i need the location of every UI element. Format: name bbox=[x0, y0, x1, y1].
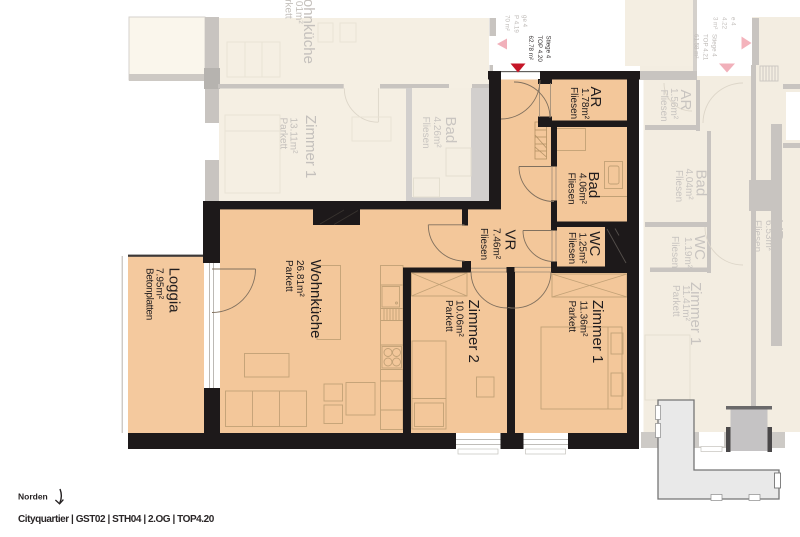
svg-text:6.53m²: 6.53m² bbox=[763, 220, 774, 252]
svg-text:1.25m²: 1.25m² bbox=[577, 233, 588, 265]
svg-text:Zimmer 1: Zimmer 1 bbox=[589, 300, 606, 363]
svg-text:Parkett: Parkett bbox=[566, 301, 577, 333]
svg-text:Cityquartier | GST02 | STH04 |: Cityquartier | GST02 | STH04 | 2.OG | TO… bbox=[18, 514, 215, 525]
svg-text:Fliesen: Fliesen bbox=[658, 90, 669, 122]
svg-text:4.22: 4.22 bbox=[720, 17, 727, 30]
svg-text:Fliesen: Fliesen bbox=[673, 170, 684, 202]
svg-text:Stiege 4: Stiege 4 bbox=[545, 36, 552, 59]
svg-text:3 m²: 3 m² bbox=[711, 17, 718, 29]
svg-text:Loggia: Loggia bbox=[166, 268, 183, 314]
svg-text:VR: VR bbox=[502, 230, 519, 251]
svg-text:ge 4: ge 4 bbox=[521, 15, 528, 28]
svg-text:Zimmer 2: Zimmer 2 bbox=[465, 300, 482, 363]
svg-text:Norden: Norden bbox=[18, 492, 48, 502]
svg-text:70 m²: 70 m² bbox=[504, 15, 511, 31]
svg-text:e 4: e 4 bbox=[729, 17, 736, 26]
svg-text:Fliesen: Fliesen bbox=[565, 173, 576, 205]
svg-text:Stiege 4: Stiege 4 bbox=[710, 34, 717, 57]
svg-text:Wohnküche: Wohnküche bbox=[307, 260, 324, 339]
svg-text:Fliesen: Fliesen bbox=[478, 228, 489, 260]
svg-text:Parkett: Parkett bbox=[443, 300, 454, 332]
svg-text:Parkett: Parkett bbox=[278, 118, 289, 150]
svg-text:Fliesen: Fliesen bbox=[669, 236, 680, 268]
svg-text:Fliesen: Fliesen bbox=[568, 87, 579, 119]
svg-text:26.81m²: 26.81m² bbox=[294, 260, 305, 297]
svg-text:1.78m²: 1.78m² bbox=[579, 88, 590, 120]
svg-text:TOP 4.20: TOP 4.20 bbox=[536, 36, 543, 63]
svg-text:Bad: Bad bbox=[442, 117, 459, 144]
svg-text:Parkett: Parkett bbox=[283, 260, 294, 292]
svg-text:61.58 m²: 61.58 m² bbox=[692, 34, 699, 58]
svg-text:WC: WC bbox=[586, 231, 603, 256]
svg-text:Fliesen: Fliesen bbox=[566, 232, 577, 264]
svg-text:Parkett: Parkett bbox=[670, 285, 681, 317]
svg-text:62.78 m²: 62.78 m² bbox=[527, 36, 534, 60]
svg-text:Zimmer 1: Zimmer 1 bbox=[302, 115, 319, 178]
svg-text:24.01m²: 24.01m² bbox=[293, 0, 304, 24]
svg-text:Betonplatten: Betonplatten bbox=[143, 268, 154, 320]
svg-text:4.06m²: 4.06m² bbox=[577, 173, 588, 205]
svg-text:7.46m²: 7.46m² bbox=[491, 228, 502, 260]
svg-text:4.04m²: 4.04m² bbox=[683, 169, 694, 201]
svg-text:4.26m²: 4.26m² bbox=[431, 117, 442, 149]
svg-text:11.36m²: 11.36m² bbox=[577, 301, 588, 338]
svg-text:TOP 4.21: TOP 4.21 bbox=[701, 34, 708, 61]
svg-text:1.19m²: 1.19m² bbox=[682, 237, 693, 269]
svg-text:Fliesen: Fliesen bbox=[420, 117, 431, 149]
svg-text:P 4.19: P 4.19 bbox=[513, 15, 520, 33]
svg-text:Fliesen: Fliesen bbox=[752, 220, 763, 252]
svg-text:Parkett: Parkett bbox=[282, 0, 293, 19]
